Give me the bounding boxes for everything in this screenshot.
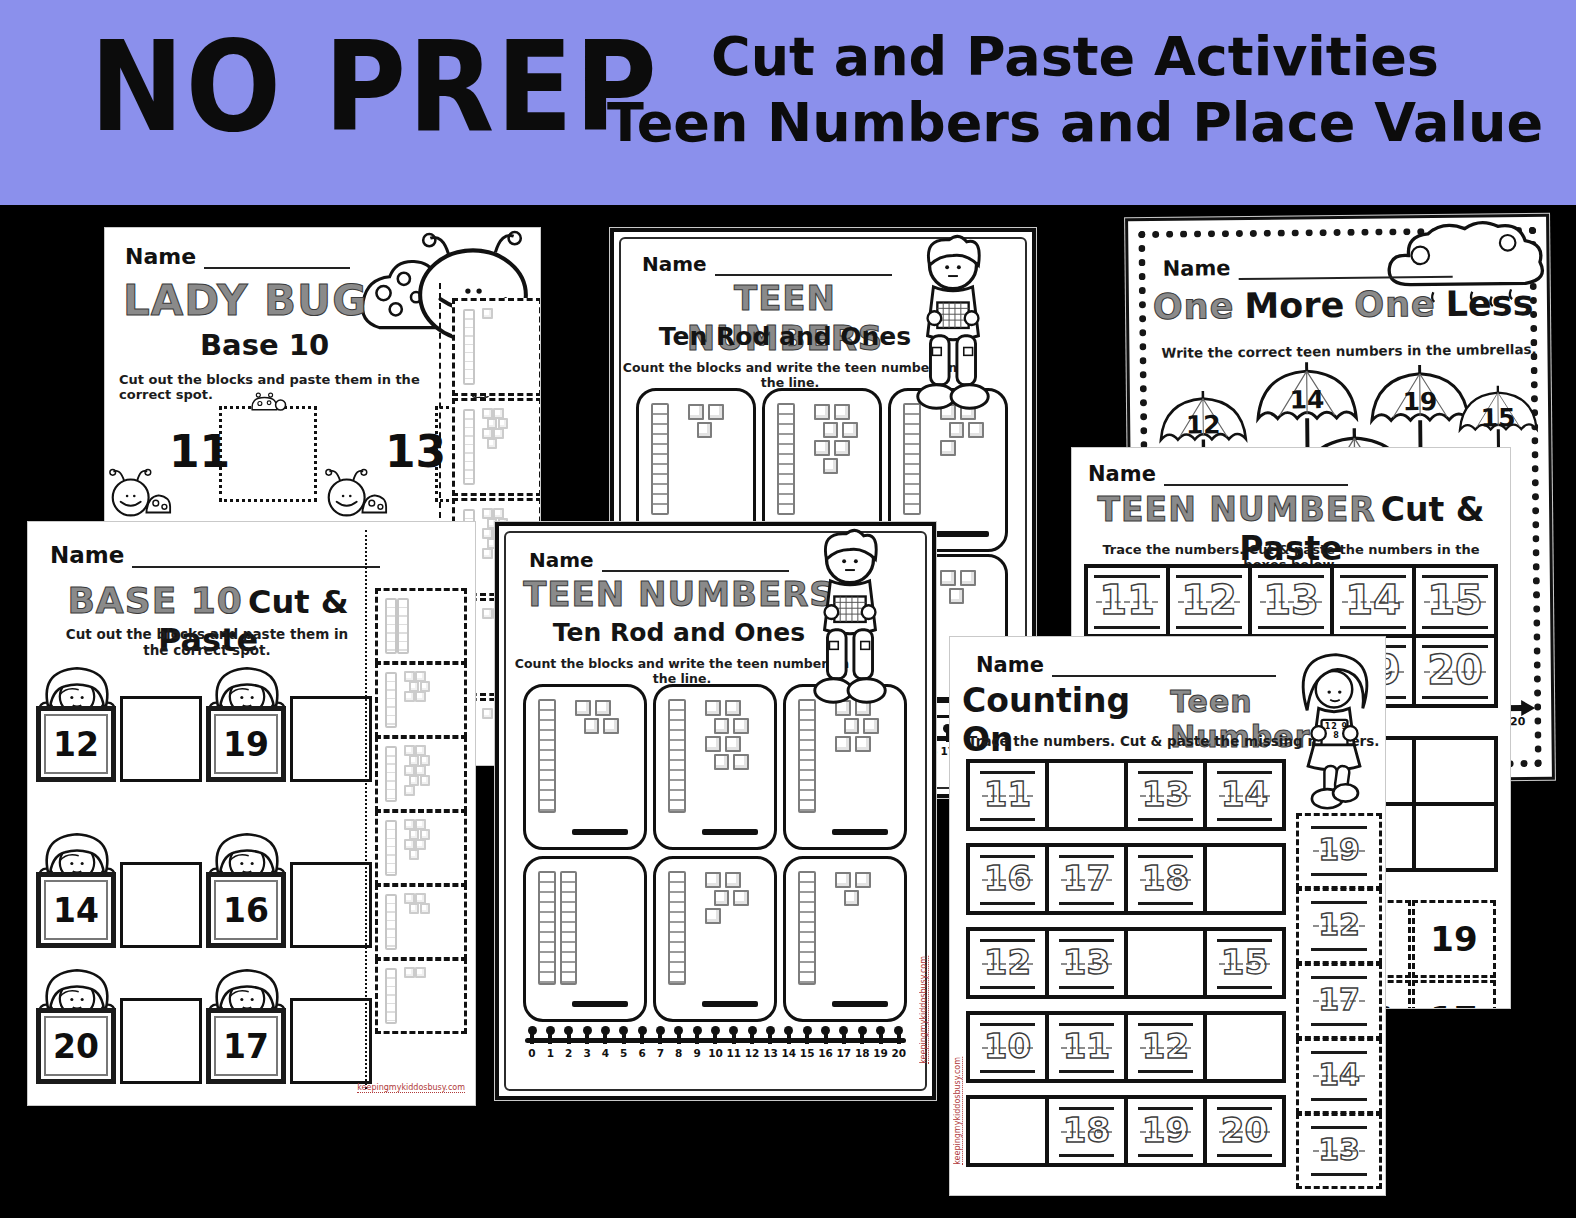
- trace-number: 15: [1427, 577, 1483, 623]
- watermark: keepingmykiddosbusy.com: [357, 1083, 465, 1093]
- trace-number: 13: [1063, 942, 1110, 982]
- title-hatched: BASE 10: [67, 580, 242, 621]
- grid-cell: 20: [1207, 1099, 1282, 1163]
- boy-clipart: [902, 232, 1004, 418]
- answer-line: [933, 531, 989, 537]
- sheet-subtitle: Ten Rod and Ones: [519, 618, 839, 647]
- answer-line: [572, 829, 628, 835]
- block-card: [653, 684, 777, 850]
- number-cut-card: 17: [1412, 980, 1496, 1008]
- block-card: [523, 856, 647, 1022]
- name-label: Name: [642, 252, 707, 276]
- name-label: Name: [1088, 462, 1156, 486]
- trace-number: 13: [1318, 1132, 1360, 1167]
- name-field: Name: [1088, 462, 1348, 486]
- paste-cell: [1416, 740, 1494, 802]
- ladybug-icon: [107, 456, 173, 526]
- base-ten-blocks: [794, 695, 898, 817]
- trace-number: 17: [1318, 982, 1360, 1017]
- kid-with-sign: 16: [204, 830, 370, 962]
- cut-piece: [375, 810, 467, 886]
- kid-with-sign: 14: [34, 830, 200, 962]
- trace-cell: 11: [1088, 568, 1166, 634]
- number-cut-card: 13: [1296, 1113, 1382, 1189]
- grid-cell: 11: [1049, 1015, 1124, 1079]
- number-cut-card: 12: [1296, 888, 1382, 964]
- sign-number: 20: [53, 1027, 99, 1066]
- base-ten-blocks: [664, 867, 768, 989]
- number-cut-card: 14: [1296, 1038, 1382, 1114]
- number-line-label: 20: [1510, 715, 1525, 728]
- title-word: More: [1244, 285, 1344, 326]
- sign-number: 16: [223, 891, 269, 930]
- grid-row: 10 11 12: [966, 1011, 1286, 1083]
- instructions: Write the correct teen numbers in the um…: [1161, 341, 1536, 361]
- girl-clipart: 12 9 8: [1286, 647, 1382, 810]
- grid-cell: 11: [970, 763, 1045, 827]
- watermark: keepingmykiddosbusy.com: [953, 1057, 963, 1165]
- trace-number: 14: [1221, 774, 1268, 814]
- umbrella-number: 19: [1402, 387, 1437, 416]
- name-label: Name: [529, 548, 594, 572]
- cut-piece: [375, 736, 467, 812]
- answer-line: [572, 1001, 628, 1007]
- cut-line: [365, 530, 367, 1089]
- kid-with-sign: 12: [34, 664, 200, 796]
- base-ten-blocks: [381, 816, 461, 880]
- grid-cell: 13: [1128, 763, 1203, 827]
- trace-number: 20: [1427, 647, 1483, 693]
- name-line: [132, 548, 380, 568]
- umbrella-number: 14: [1289, 385, 1324, 414]
- block-card: [523, 684, 647, 850]
- kid-with-sign: 20: [34, 966, 200, 1098]
- paste-box: [120, 998, 202, 1084]
- trace-number: 16: [984, 858, 1031, 898]
- name-line: [1238, 258, 1452, 280]
- cut-piece: [375, 588, 467, 664]
- trace-number: 18: [1063, 1110, 1110, 1150]
- base-ten-blocks: [381, 594, 461, 658]
- grid-row: 16 17 18: [966, 843, 1286, 915]
- name-line: [715, 256, 892, 276]
- trace-cell: 20: [1416, 638, 1494, 704]
- base-ten-blocks: [794, 867, 898, 989]
- number-sign: 16: [206, 872, 286, 948]
- base-ten-blocks: [381, 890, 461, 954]
- title-hatched: TEEN NUMBER: [1098, 490, 1376, 529]
- answer-line: [832, 1001, 888, 1007]
- promo-image: NO PREP Cut and Paste Activities Teen Nu…: [0, 0, 1576, 1218]
- number-line: 01234567891011121314151617181920: [523, 1026, 908, 1076]
- kid-with-sign: 19: [204, 664, 370, 796]
- name-field: Name: [642, 252, 892, 276]
- trace-number: 13: [1142, 774, 1189, 814]
- cut-piece: [375, 958, 467, 1034]
- base-ten-blocks: [773, 399, 873, 519]
- trace-cell: 14: [1334, 568, 1412, 634]
- grid-cell: 15: [1207, 931, 1282, 995]
- cut-piece: [375, 884, 467, 960]
- paste-cell: [1416, 806, 1494, 868]
- kid-with-sign: 17: [204, 966, 370, 1098]
- grid-cell-blank: [1207, 847, 1282, 911]
- trace-number: 20: [1221, 1110, 1268, 1150]
- trace-number: 14: [1345, 577, 1401, 623]
- name-field: Name: [125, 244, 350, 269]
- title-word: One: [1354, 284, 1436, 325]
- trace-number: 12: [984, 942, 1031, 982]
- name-line: [204, 249, 350, 269]
- name-label: Name: [1162, 256, 1230, 281]
- sign-number: 19: [223, 725, 269, 764]
- trace-cell: 13: [1252, 568, 1330, 634]
- trace-number: 11: [1063, 1026, 1110, 1066]
- cut-piece: [375, 662, 467, 738]
- number-sign: 12: [36, 706, 116, 782]
- number-cut-card: 19: [1412, 900, 1496, 978]
- name-label: Name: [125, 244, 196, 269]
- instructions: Cut out the blocks and paste them in the…: [52, 626, 362, 658]
- base-ten-blocks: [381, 964, 461, 1028]
- number-cut-card: 19: [1296, 813, 1382, 889]
- ladybug-icon: [323, 456, 389, 526]
- base-ten-blocks: [534, 695, 638, 817]
- base-ten-blocks: [664, 695, 768, 817]
- watermark: keepingmykiddosbusy.com: [919, 956, 929, 1064]
- name-field: Name: [976, 653, 1276, 677]
- name-field: Name: [1162, 254, 1452, 281]
- trace-number: 19: [1318, 832, 1360, 867]
- paste-box: [120, 862, 202, 948]
- name-label: Name: [50, 542, 124, 568]
- banner-subtitle-line2: Teen Numbers and Place Value: [600, 90, 1550, 156]
- grid-cell: 17: [1049, 847, 1124, 911]
- paste-box: [290, 998, 372, 1084]
- name-label: Name: [976, 653, 1044, 677]
- worksheet-teen-numbers-center: Name TEEN NUMBERS Ten Rod and Ones Count…: [495, 522, 936, 1100]
- sheet-title: TEEN NUMBERS: [519, 574, 839, 614]
- trace-number: 12: [1318, 907, 1360, 942]
- paste-box: [219, 406, 317, 502]
- trace-cell: 15: [1416, 568, 1494, 634]
- header-banner: NO PREP Cut and Paste Activities Teen Nu…: [0, 0, 1576, 205]
- sheet-subtitle: Ten Rod and Ones: [630, 322, 940, 351]
- banner-title: NO PREP: [90, 14, 659, 160]
- number-sign: 14: [36, 872, 116, 948]
- cut-piece: [452, 298, 540, 396]
- trace-number: 13: [1263, 577, 1319, 623]
- name-line: [1164, 466, 1348, 486]
- answer-line: [832, 829, 888, 835]
- trace-number: 11: [1099, 577, 1155, 623]
- base-ten-blocks: [381, 668, 461, 732]
- number-sign: 19: [206, 706, 286, 782]
- worksheet-base10-cut-paste: Name BASE 10 Cut & Paste Cut out the blo…: [28, 522, 475, 1105]
- answer-line: [702, 829, 758, 835]
- name-field: Name: [50, 542, 380, 568]
- sign-number: 12: [53, 725, 99, 764]
- boy-clipart: [799, 526, 901, 712]
- trace-number: 19: [1142, 1110, 1189, 1150]
- number-cut-card: 17: [1296, 963, 1382, 1039]
- grid-cell: 18: [1128, 847, 1203, 911]
- trace-number: 12: [1142, 1026, 1189, 1066]
- trace-number: 14: [1318, 1057, 1360, 1092]
- trace-number: 10: [984, 1026, 1031, 1066]
- grid-cell: 12: [970, 931, 1045, 995]
- block-card: [653, 856, 777, 1022]
- grid-cell-blank: [1128, 931, 1203, 995]
- grid-cell-blank: [1207, 1015, 1282, 1079]
- block-card: [783, 856, 907, 1022]
- base-ten-blocks: [534, 867, 638, 989]
- mini-ladybug-icon: [243, 392, 289, 412]
- base-ten-blocks: [381, 742, 461, 806]
- worksheet-counting-on: Name Counting On Teen Numbers Trace the …: [950, 637, 1385, 1195]
- trace-number: 12: [1181, 577, 1237, 623]
- grid-cell: 16: [970, 847, 1045, 911]
- grid-cell: 14: [1207, 763, 1282, 827]
- grid-row: 18 19 20: [966, 1095, 1286, 1167]
- grid-row: 12 13 15: [966, 927, 1286, 999]
- cut-card-number: 17: [1430, 999, 1477, 1008]
- grid-row: 11 13 14: [966, 759, 1286, 831]
- base-ten-blocks: [459, 405, 535, 489]
- grid-cell: 19: [1128, 1099, 1203, 1163]
- sign-number: 14: [53, 891, 99, 930]
- answer-line: [702, 1001, 758, 1007]
- cut-card-number: 19: [1430, 919, 1477, 959]
- name-field: Name: [529, 548, 789, 572]
- trace-number: 17: [1063, 858, 1110, 898]
- number-sign: 20: [36, 1008, 116, 1084]
- sheet-subtitle: Base 10: [200, 328, 329, 362]
- name-line: [1052, 657, 1276, 677]
- base-ten-blocks: [647, 399, 747, 519]
- umbrella-number: 15: [1481, 403, 1516, 432]
- title-word: Less: [1445, 283, 1533, 324]
- grid-cell: 12: [1128, 1015, 1203, 1079]
- title-word: One: [1153, 286, 1235, 327]
- paste-box: [120, 696, 202, 782]
- trace-number: 15: [1221, 942, 1268, 982]
- number-sign: 17: [206, 1008, 286, 1084]
- banner-subtitle: Cut and Paste Activities Teen Numbers an…: [600, 24, 1550, 156]
- trace-number: 11: [984, 774, 1031, 814]
- base-ten-blocks: [459, 305, 535, 389]
- tablet-numbers: 12 9 8: [1323, 722, 1349, 740]
- trace-cell: 12: [1170, 568, 1248, 634]
- sheet-title: One More One Less: [1153, 283, 1534, 327]
- grid-cell-blank: [970, 1099, 1045, 1163]
- sign-number: 17: [223, 1027, 269, 1066]
- umbrella-number: 12: [1186, 410, 1221, 439]
- grid-cell: 18: [1049, 1099, 1124, 1163]
- name-line: [602, 552, 789, 572]
- grid-cell-blank: [1049, 763, 1124, 827]
- grid-cell: 13: [1049, 931, 1124, 995]
- sheet-title: LADY BUG: [123, 276, 368, 325]
- banner-subtitle-line1: Cut and Paste Activities: [600, 24, 1550, 90]
- cut-piece: [452, 398, 540, 496]
- trace-number: 18: [1142, 858, 1189, 898]
- paste-box: [290, 696, 372, 782]
- paste-box: [290, 862, 372, 948]
- grid-cell: 10: [970, 1015, 1045, 1079]
